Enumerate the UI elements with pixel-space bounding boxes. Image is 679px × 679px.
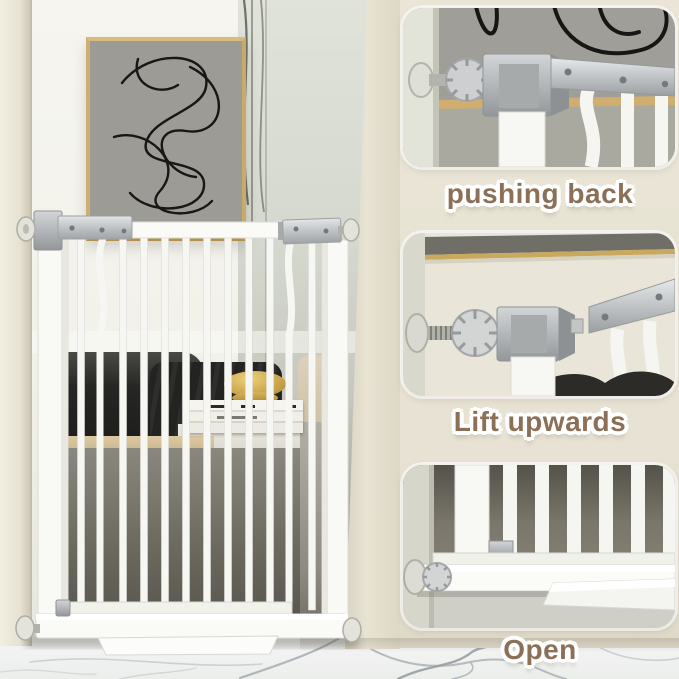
gate-bar — [621, 92, 634, 167]
latch-tab — [571, 319, 583, 333]
gate-bar — [655, 96, 668, 167]
gate-post — [511, 357, 555, 396]
gate-post — [499, 112, 545, 167]
gate-curved-bar — [100, 238, 104, 610]
gate-post — [455, 465, 489, 565]
step-caption-lift-upwards: Lift upwards — [402, 406, 678, 438]
gate-bars — [78, 238, 316, 610]
safety-gate — [0, 0, 400, 679]
step-panel-open — [403, 465, 675, 628]
product-image: pushing back — [0, 0, 679, 679]
gate-curved-bar — [288, 240, 291, 610]
step-caption-pushing-back: pushing back — [402, 178, 678, 210]
gate-curved-bar — [586, 88, 593, 167]
gate-latch-left — [17, 211, 132, 250]
step-panel-pushing-back — [403, 8, 675, 167]
gate-latch-right — [278, 218, 359, 244]
pushing-back-closeup — [403, 8, 675, 167]
step-caption-open: Open — [402, 634, 678, 666]
wall-edge — [403, 465, 433, 628]
gate-threshold-ramp — [98, 636, 278, 655]
step-panel-lift-upwards — [403, 233, 675, 396]
open-closeup — [403, 465, 675, 628]
gate-bottom-rail — [36, 600, 348, 638]
lift-upwards-closeup — [403, 233, 675, 396]
